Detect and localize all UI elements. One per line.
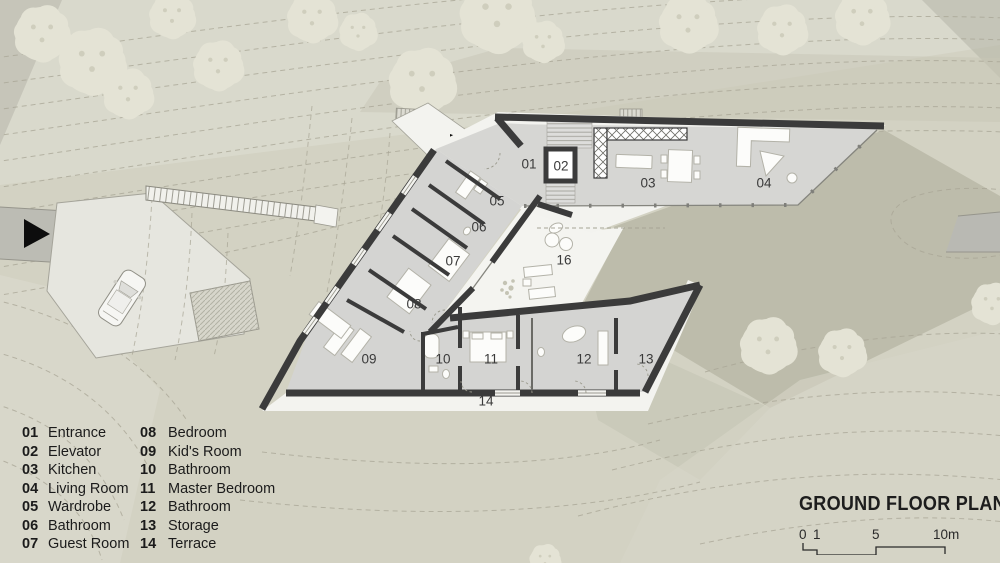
room-label-04: 04 (756, 176, 772, 191)
legend-label: Master Bedroom (168, 480, 275, 499)
room-label-13: 13 (638, 352, 653, 367)
legend-number: 05 (22, 498, 48, 517)
room-label-12: 12 (576, 352, 591, 367)
vanity-12 (598, 331, 608, 365)
legend-label: Guest Room (48, 535, 140, 554)
legend-number: 08 (140, 424, 168, 443)
legend-label: Bedroom (168, 424, 275, 443)
kitchen-island (616, 154, 652, 168)
legend-label: Living Room (48, 480, 140, 499)
room-label-10: 10 (435, 352, 450, 367)
legend-label: Kid's Room (168, 443, 275, 462)
scale-label: 5 (872, 527, 880, 542)
legend-label: Storage (168, 517, 275, 536)
scale-label: 1 (813, 527, 821, 542)
room-label-01: 01 (521, 157, 536, 172)
room-label-09: 09 (361, 352, 376, 367)
legend-label: Bathroom (48, 517, 140, 536)
room-label-11: 11 (484, 352, 498, 367)
legend-number: 07 (22, 535, 48, 554)
legend: 01Entrance08Bedroom02Elevator09Kid's Roo… (22, 424, 275, 554)
legend-label: Wardrobe (48, 498, 140, 517)
courtyard-stone (545, 233, 559, 247)
room-label-03: 03 (640, 176, 655, 191)
legend-number: 04 (22, 480, 48, 499)
legend-label: Entrance (48, 424, 140, 443)
legend-label: Terrace (168, 535, 275, 554)
legend-label: Bathroom (168, 461, 275, 480)
scale-label: 0 (799, 527, 807, 542)
room-label-06: 06 (471, 220, 486, 235)
legend-number: 11 (140, 480, 168, 499)
legend-number: 01 (22, 424, 48, 443)
legend-label: Kitchen (48, 461, 140, 480)
legend-number: 03 (22, 461, 48, 480)
legend-number: 14 (140, 535, 168, 554)
room-label-02: 02 (553, 159, 568, 174)
room-label-16: 16 (556, 253, 571, 268)
toilet-12 (538, 348, 545, 357)
scale-label: 10m (933, 527, 959, 542)
legend-number: 13 (140, 517, 168, 536)
scale-bar-line (795, 541, 965, 555)
ground-floor-plan-sheet: 010203040506070809101112131416 01Entranc… (0, 0, 1000, 563)
courtyard-stone (560, 238, 573, 251)
dining-table (667, 150, 692, 183)
stool (787, 173, 797, 183)
legend-label: Bathroom (168, 498, 275, 517)
room-label-08: 08 (406, 297, 421, 312)
lounger (529, 287, 556, 300)
legend-number: 02 (22, 443, 48, 462)
legend-number: 10 (140, 461, 168, 480)
toilet-10 (443, 370, 450, 379)
room-label-07: 07 (445, 254, 460, 269)
legend-label: Elevator (48, 443, 140, 462)
legend-number: 06 (22, 517, 48, 536)
legend-number: 12 (140, 498, 168, 517)
legend-number: 09 (140, 443, 168, 462)
scale-bar: 01510m (795, 527, 965, 555)
room-label-05: 05 (489, 194, 504, 209)
room-label-14: 14 (478, 394, 494, 409)
page-title: GROUND FLOOR PLAN (799, 492, 1000, 516)
